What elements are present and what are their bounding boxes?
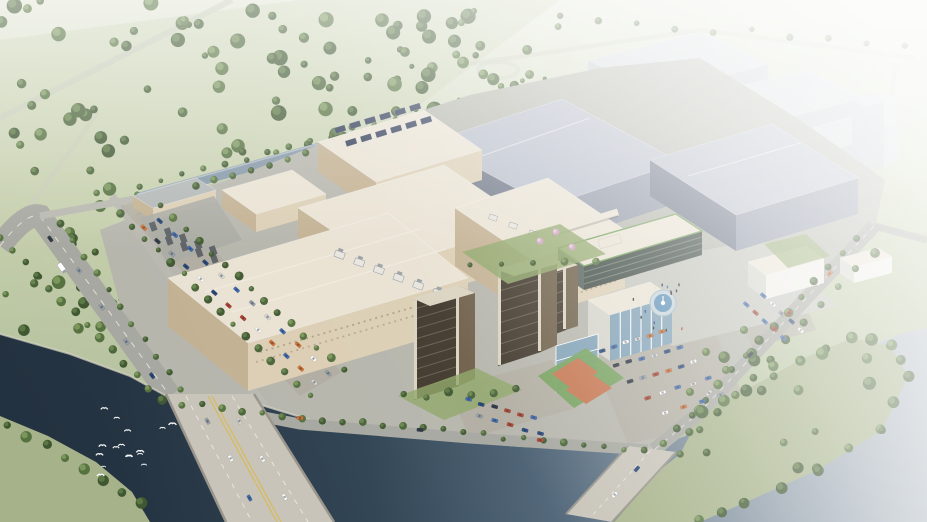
rendering-stage [0,0,927,522]
aerial-campus-rendering [0,0,927,522]
horizon-haze-overlay [0,0,927,260]
